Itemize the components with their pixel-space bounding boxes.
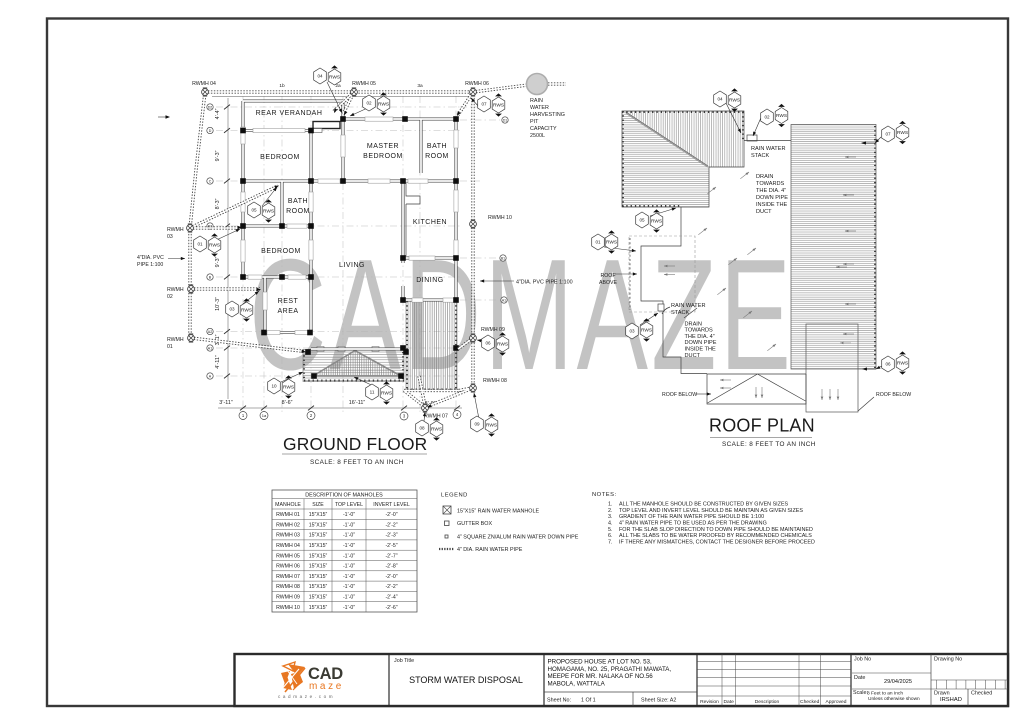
svg-text:15”X15”: 15”X15” [309, 595, 328, 601]
svg-text:ROOF: ROOF [601, 273, 616, 279]
svg-text:RWS: RWS [651, 219, 662, 225]
svg-text:RWMH 01: RWMH 01 [276, 512, 300, 518]
svg-text:A1: A1 [502, 298, 506, 302]
svg-text:maze: maze [309, 681, 344, 692]
svg-text:1a: 1a [262, 413, 267, 418]
svg-text:THE DIA. 4”: THE DIA. 4” [685, 334, 715, 340]
svg-text:TOWARDS: TOWARDS [685, 328, 714, 334]
svg-text:07: 07 [481, 102, 487, 107]
svg-text:2.: 2. [608, 508, 613, 514]
svg-text:KITCHEN: KITCHEN [413, 219, 447, 226]
svg-text:RWMH 10: RWMH 10 [276, 605, 300, 611]
svg-text:15”X15”: 15”X15” [309, 543, 328, 549]
svg-text:BATH: BATH [427, 143, 447, 150]
svg-text:RWMH 04: RWMH 04 [192, 81, 216, 87]
svg-text:3’-11”: 3’-11” [219, 400, 233, 406]
svg-text:RWMH 02: RWMH 02 [276, 522, 300, 528]
svg-text:MABOLA, WATTALA: MABOLA, WATTALA [548, 680, 606, 687]
svg-text:-2’-0”: -2’-0” [385, 512, 397, 518]
svg-text:RWMH 07: RWMH 07 [276, 574, 300, 580]
svg-text:-1’-0”: -1’-0” [343, 574, 355, 580]
svg-text:-2’-6”: -2’-6” [385, 605, 397, 611]
svg-text:ROOM: ROOM [286, 208, 310, 215]
svg-text:9’-3”: 9’-3” [215, 256, 221, 267]
svg-text:-2’-2”: -2’-2” [385, 584, 397, 590]
svg-text:-1’-0”: -1’-0” [343, 595, 355, 601]
svg-text:DINING: DINING [416, 277, 444, 284]
svg-text:RWS: RWS [776, 113, 787, 119]
svg-text:5.: 5. [608, 527, 613, 533]
svg-text:15”X15”: 15”X15” [309, 584, 328, 590]
svg-text:GROUND FLOOR: GROUND FLOOR [283, 434, 427, 454]
svg-text:CAPACITY: CAPACITY [530, 126, 557, 132]
svg-text:01: 01 [595, 240, 601, 245]
svg-text:RWMH 10: RWMH 10 [488, 215, 512, 221]
svg-text:D: D [209, 129, 212, 133]
svg-text:15”X15”: 15”X15” [309, 574, 328, 580]
svg-text:8’-6”: 8’-6” [282, 400, 293, 406]
svg-text:3.: 3. [608, 514, 613, 520]
svg-text:RWMH: RWMH [167, 287, 184, 293]
svg-text:BEDROOM: BEDROOM [261, 248, 301, 255]
svg-text:03: 03 [629, 329, 635, 334]
svg-text:HOMAGAMA, NO. 25, PRAGATHI MAW: HOMAGAMA, NO. 25, PRAGATHI MAWATA, [548, 666, 672, 673]
svg-text:ROOM: ROOM [425, 153, 449, 160]
svg-text:08: 08 [419, 426, 425, 431]
svg-text:TOP LEVEL AND INVERT LEVEL SHO: TOP LEVEL AND INVERT LEVEL SHOULD BE MAI… [619, 508, 803, 514]
svg-text:REST: REST [278, 298, 299, 305]
svg-text:STORM WATER DISPOSAL: STORM WATER DISPOSAL [409, 675, 523, 685]
svg-text:THE DIA. 4”: THE DIA. 4” [756, 188, 786, 194]
svg-text:INVERT LEVEL: INVERT LEVEL [373, 502, 410, 508]
svg-text:02: 02 [764, 115, 770, 120]
svg-text:RWS: RWS [606, 240, 617, 246]
svg-text:ROOF BELOW: ROOF BELOW [876, 392, 911, 398]
svg-text:11: 11 [370, 390, 375, 395]
svg-text:03: 03 [167, 234, 173, 240]
svg-text:4”DIA. PVC PIPE 1:100: 4”DIA. PVC PIPE 1:100 [516, 280, 573, 286]
svg-text:LEGEND: LEGEND [441, 493, 468, 499]
svg-text:-2’-8”: -2’-8” [385, 564, 397, 570]
svg-text:PIT: PIT [530, 119, 539, 125]
svg-text:Date: Date [724, 699, 735, 705]
svg-text:SCALE: 8 FEET TO AN INCH: SCALE: 8 FEET TO AN INCH [310, 459, 404, 466]
svg-text:RAIN WATER: RAIN WATER [751, 146, 786, 152]
svg-text:15”X15” RAIN WATER MANHOLE: 15”X15” RAIN WATER MANHOLE [457, 509, 539, 515]
svg-text:-2’-4”: -2’-4” [385, 595, 397, 601]
svg-text:01: 01 [197, 242, 203, 247]
svg-text:Sheet No:: Sheet No: [547, 698, 571, 704]
svg-text:-1’-0”: -1’-0” [343, 543, 355, 549]
svg-text:cadmaze.com: cadmaze.com [278, 694, 335, 699]
svg-text:DUCT: DUCT [756, 209, 772, 215]
svg-text:15”X15”: 15”X15” [309, 512, 328, 518]
svg-text:6.: 6. [608, 533, 613, 539]
svg-text:ROOF BELOW: ROOF BELOW [662, 392, 697, 398]
svg-text:-2’-7”: -2’-7” [385, 553, 397, 559]
svg-text:-1’-0”: -1’-0” [343, 605, 355, 611]
svg-text:4” SQUARE ZN/ALUM RAIN WATER D: 4” SQUARE ZN/ALUM RAIN WATER DOWN PIPE [457, 535, 579, 541]
svg-text:RWS: RWS [897, 361, 908, 367]
svg-text:8 Feet to an Inch: 8 Feet to an Inch [867, 691, 903, 697]
svg-text:DRAIN: DRAIN [756, 174, 773, 180]
svg-text:RWS: RWS [241, 308, 252, 314]
svg-text:Unless otherwise shown: Unless otherwise shown [868, 696, 920, 702]
svg-text:DOWN PIPE: DOWN PIPE [685, 340, 717, 346]
svg-text:FOR THE SLAB SLOP DIRECTION TO: FOR THE SLAB SLOP DIRECTION TO DOWN PIPE… [619, 527, 813, 533]
svg-text:16’-11”: 16’-11” [349, 400, 366, 406]
svg-text:WATER: WATER [530, 105, 549, 111]
svg-text:GRADIENT OF THE RAIN WATER PIP: GRADIENT OF THE RAIN WATER PIPE SHOULD B… [619, 514, 764, 520]
svg-text:Scale:: Scale: [853, 690, 868, 696]
svg-text:-2’-5”: -2’-5” [385, 543, 397, 549]
svg-text:B1: B1 [501, 256, 505, 260]
svg-text:15”X15”: 15”X15” [309, 533, 328, 539]
svg-text:RWMH: RWMH [167, 337, 184, 343]
svg-text:8’-3”: 8’-3” [215, 198, 221, 209]
svg-text:MASTER: MASTER [367, 143, 399, 150]
svg-text:05: 05 [251, 208, 257, 213]
svg-text:PROPOSED HOUSE AT LOT NO. 53,: PROPOSED HOUSE AT LOT NO. 53, [548, 659, 652, 666]
svg-text:ALL THE SLABS TO BE WATER PROO: ALL THE SLABS TO BE WATER PROOFED BY REC… [619, 533, 812, 539]
svg-text:2500L: 2500L [530, 133, 545, 139]
svg-text:Approved: Approved [826, 699, 847, 705]
svg-text:TOP LEVEL: TOP LEVEL [335, 502, 363, 508]
svg-text:10’-3”: 10’-3” [215, 297, 221, 311]
svg-text:4”DIA. PVC: 4”DIA. PVC [137, 255, 164, 261]
svg-text:4.: 4. [608, 521, 613, 527]
svg-text:HARVESTING: HARVESTING [530, 112, 565, 118]
svg-text:IF THERE ANY MISMATCHES, CONTA: IF THERE ANY MISMATCHES, CONTACT THE DES… [619, 540, 815, 546]
svg-text:1.: 1. [608, 502, 613, 508]
svg-text:03: 03 [229, 307, 235, 312]
svg-text:15”X15”: 15”X15” [309, 522, 328, 528]
svg-text:C: C [209, 179, 212, 183]
svg-text:06: 06 [885, 362, 891, 367]
svg-text:RWMH 08: RWMH 08 [276, 584, 300, 590]
svg-text:RWS: RWS [729, 98, 740, 104]
svg-text:Drawn: Drawn [934, 691, 950, 697]
svg-text:Drawing No: Drawing No [934, 657, 962, 663]
svg-text:PIPE 1:100: PIPE 1:100 [137, 262, 163, 268]
svg-text:RWS: RWS [486, 423, 497, 429]
svg-text:BEDROOM: BEDROOM [363, 153, 403, 160]
svg-text:D1: D1 [503, 118, 507, 122]
svg-text:09: 09 [474, 422, 480, 427]
svg-text:RWS: RWS [431, 427, 442, 433]
svg-text:ALL THE MANHOLE SHOULD BE CONS: ALL THE MANHOLE SHOULD BE CONSTRUCTED BY… [619, 502, 789, 508]
svg-text:05: 05 [639, 218, 645, 223]
svg-text:RWMH 06: RWMH 06 [465, 81, 489, 87]
svg-text:4” DIA. RAIN WATER PIPE: 4” DIA. RAIN WATER PIPE [457, 547, 523, 553]
svg-text:STACK: STACK [671, 310, 690, 316]
svg-text:15”X15”: 15”X15” [309, 553, 328, 559]
svg-text:RWS: RWS [209, 243, 220, 249]
svg-text:A1: A1 [208, 346, 212, 350]
svg-text:Revision: Revision [700, 699, 719, 705]
svg-text:SIZE: SIZE [312, 502, 324, 508]
svg-text:3a: 3a [417, 83, 423, 89]
svg-text:NOTES:: NOTES: [592, 492, 617, 498]
svg-text:RWS: RWS [497, 342, 508, 348]
svg-text:10: 10 [271, 384, 277, 389]
svg-text:-1’-0”: -1’-0” [343, 522, 355, 528]
svg-text:INSIDE THE: INSIDE THE [685, 347, 717, 353]
svg-text:STACK: STACK [751, 153, 770, 159]
svg-text:Checked: Checked [800, 699, 820, 705]
svg-text:29/04/2025: 29/04/2025 [884, 679, 912, 685]
svg-text:4” RAIN WATER PIPE TO BE USED: 4” RAIN WATER PIPE TO BE USED AS PER THE… [619, 521, 767, 527]
svg-text:RWMH: RWMH [167, 227, 184, 233]
svg-text:-2’-3”: -2’-3” [385, 533, 397, 539]
svg-text:ABOVE: ABOVE [599, 280, 617, 286]
svg-text:01: 01 [167, 344, 173, 350]
svg-text:-1’-0”: -1’-0” [343, 512, 355, 518]
svg-text:RWMH 09: RWMH 09 [481, 327, 505, 333]
svg-text:D2: D2 [208, 105, 213, 109]
svg-text:RWS: RWS [283, 385, 294, 391]
svg-text:RWS: RWS [897, 130, 908, 136]
svg-text:RWMH 04: RWMH 04 [276, 543, 300, 549]
svg-text:RWS: RWS [493, 103, 504, 109]
svg-text:TOWARDS: TOWARDS [756, 181, 785, 187]
svg-text:-1’-0”: -1’-0” [343, 553, 355, 559]
svg-text:MANHOLE: MANHOLE [275, 502, 301, 508]
svg-text:AREA: AREA [277, 308, 298, 315]
svg-text:4’-11”: 4’-11” [215, 355, 221, 369]
svg-text:15”X15”: 15”X15” [309, 605, 328, 611]
svg-text:1b: 1b [279, 83, 285, 89]
svg-text:4’-4”: 4’-4” [215, 108, 221, 119]
svg-text:1 Of 1: 1 Of 1 [581, 698, 596, 704]
svg-text:RWS: RWS [381, 391, 392, 397]
svg-text:IRSHAD: IRSHAD [940, 697, 962, 703]
svg-text:-2’-0”: -2’-0” [385, 574, 397, 580]
svg-text:INSIDE THE: INSIDE THE [756, 202, 788, 208]
svg-text:SCALE: 8 FEET TO AN INCH: SCALE: 8 FEET TO AN INCH [722, 441, 816, 448]
svg-text:DOWN PIPE: DOWN PIPE [756, 195, 788, 201]
svg-text:RWMH 05: RWMH 05 [352, 81, 376, 87]
svg-text:RWMH 09: RWMH 09 [276, 595, 300, 601]
svg-text:04: 04 [717, 97, 723, 102]
svg-text:02: 02 [366, 101, 372, 106]
svg-text:Job No: Job No [854, 657, 871, 663]
svg-text:RWS: RWS [329, 75, 340, 81]
svg-text:-1’-0”: -1’-0” [343, 533, 355, 539]
svg-text:LIVING: LIVING [339, 262, 365, 269]
svg-text:RWMH 08: RWMH 08 [483, 378, 507, 384]
svg-text:RAIN: RAIN [530, 98, 543, 104]
svg-text:06: 06 [485, 341, 491, 346]
svg-text:RWS: RWS [378, 102, 389, 108]
svg-text:GUTTER BOX: GUTTER BOX [457, 521, 492, 527]
svg-text:BATH: BATH [288, 198, 308, 205]
svg-text:DUCT: DUCT [685, 353, 701, 359]
svg-text:RWMH 05: RWMH 05 [276, 553, 300, 559]
svg-text:RWS: RWS [263, 209, 274, 215]
svg-text:-2’-2”: -2’-2” [385, 522, 397, 528]
svg-text:BEDROOM: BEDROOM [260, 154, 300, 161]
svg-text:RWMH 03: RWMH 03 [276, 533, 300, 539]
svg-text:Description: Description [755, 699, 780, 705]
svg-text:ROOF PLAN: ROOF PLAN [709, 416, 815, 436]
svg-text:Sheet Size: A2: Sheet Size: A2 [641, 698, 676, 704]
svg-text:-1’-0”: -1’-0” [343, 564, 355, 570]
svg-text:04: 04 [317, 74, 323, 79]
svg-text:A2: A2 [208, 330, 212, 334]
svg-text:15”X15”: 15”X15” [309, 564, 328, 570]
svg-text:RWS: RWS [641, 328, 652, 334]
svg-text:MEEPE FOR MR. NALAKA OF NO.56: MEEPE FOR MR. NALAKA OF NO.56 [548, 673, 654, 680]
svg-text:-1’-0”: -1’-0” [343, 584, 355, 590]
svg-text:7.: 7. [608, 540, 613, 546]
svg-text:Checked: Checked [971, 691, 992, 697]
svg-text:02: 02 [167, 294, 173, 300]
svg-text:DRAIN: DRAIN [685, 321, 702, 327]
svg-text:RAIN WATER: RAIN WATER [671, 303, 706, 309]
svg-text:RWMH 06: RWMH 06 [276, 564, 300, 570]
svg-text:DESCRIPTION OF MANHOLES: DESCRIPTION OF MANHOLES [305, 493, 383, 499]
svg-text:Date: Date [854, 675, 865, 681]
svg-text:07: 07 [885, 132, 891, 137]
svg-text:9’-3”: 9’-3” [215, 150, 221, 161]
svg-text:Job Title: Job Title [394, 658, 414, 664]
svg-text:REAR VERANDAH: REAR VERANDAH [256, 110, 323, 117]
